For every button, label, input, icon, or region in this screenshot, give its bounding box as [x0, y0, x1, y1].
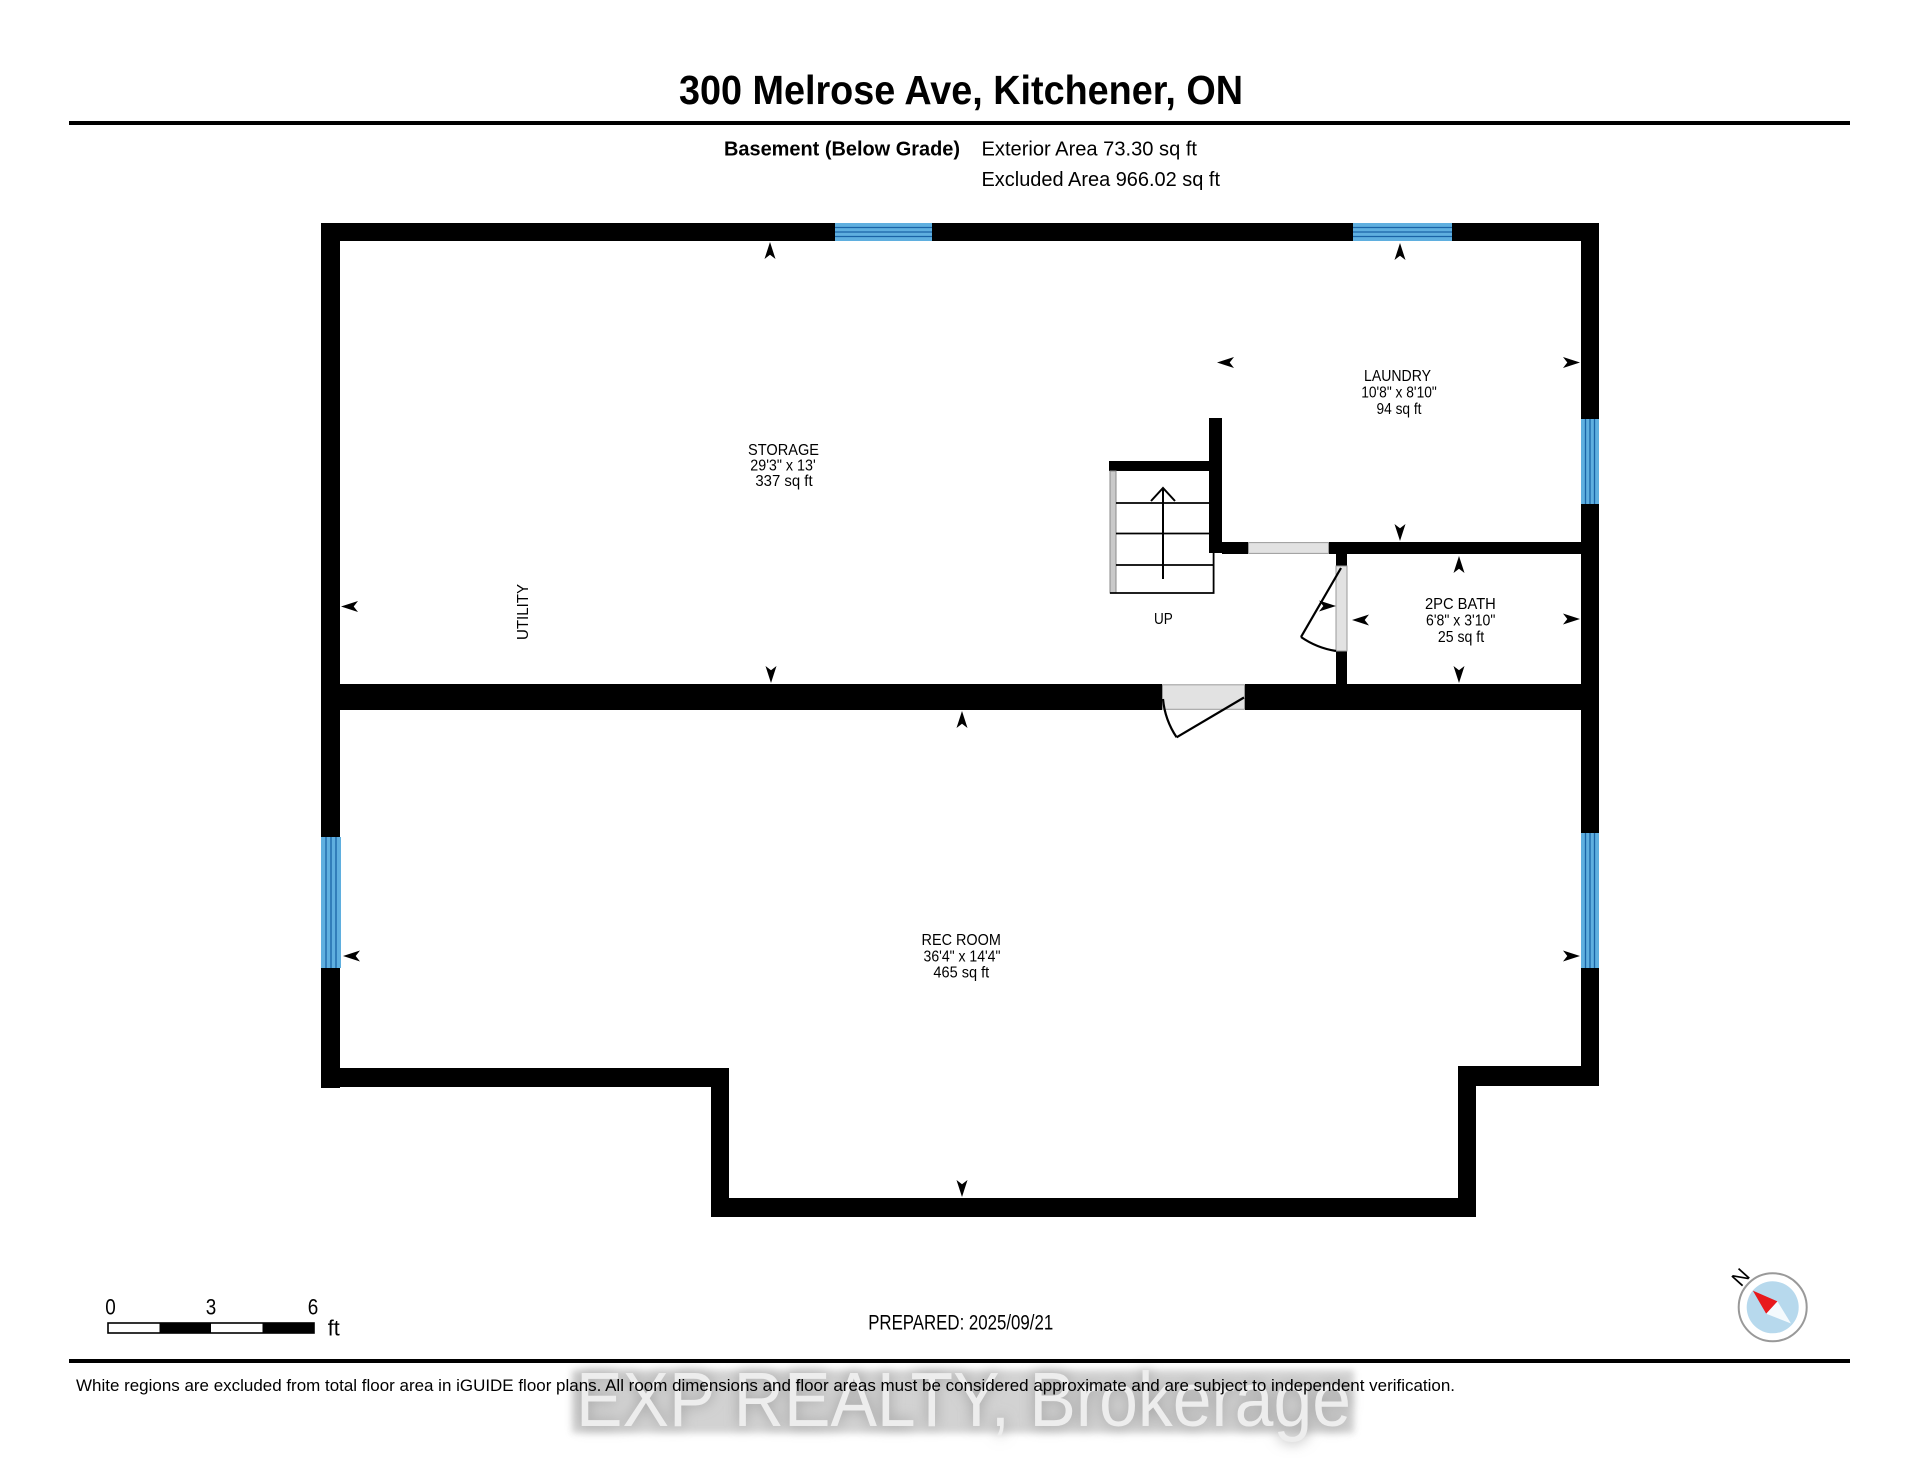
svg-text:6'8" x 3'10": 6'8" x 3'10": [1426, 613, 1495, 630]
svg-text:465 sq ft: 465 sq ft: [933, 965, 989, 982]
svg-text:UP: UP: [1154, 611, 1173, 628]
svg-text:94 sq ft: 94 sq ft: [1377, 401, 1422, 418]
svg-text:EXP REALTY, Brokerage: EXP REALTY, Brokerage: [576, 1357, 1351, 1443]
svg-text:337 sq ft: 337 sq ft: [755, 473, 813, 490]
svg-text:PREPARED: 2025/09/21: PREPARED: 2025/09/21: [868, 1311, 1053, 1335]
svg-text:Exterior Area 73.30 sq ft: Exterior Area 73.30 sq ft: [982, 138, 1198, 160]
svg-text:REC ROOM: REC ROOM: [922, 932, 1001, 949]
svg-text:0: 0: [105, 1295, 116, 1320]
svg-text:UTILITY: UTILITY: [515, 584, 532, 640]
svg-text:10'8" x 8'10": 10'8" x 8'10": [1361, 385, 1437, 402]
svg-text:25 sq ft: 25 sq ft: [1438, 629, 1485, 646]
svg-text:6: 6: [308, 1295, 319, 1320]
svg-text:29'3" x 13': 29'3" x 13': [750, 457, 815, 474]
svg-text:300 Melrose Ave, Kitchener, ON: 300 Melrose Ave, Kitchener, ON: [679, 67, 1243, 113]
svg-text:White regions are excluded fro: White regions are excluded from total fl…: [76, 1376, 1455, 1395]
svg-text:Basement (Below Grade): Basement (Below Grade): [724, 138, 960, 160]
svg-text:LAUNDRY: LAUNDRY: [1364, 368, 1431, 385]
svg-text:2PC BATH: 2PC BATH: [1425, 596, 1496, 613]
svg-text:Excluded Area 966.02 sq ft: Excluded Area 966.02 sq ft: [982, 169, 1221, 191]
svg-text:3: 3: [206, 1295, 217, 1320]
svg-text:36'4" x 14'4": 36'4" x 14'4": [924, 948, 1001, 965]
svg-text:ft: ft: [328, 1316, 340, 1341]
